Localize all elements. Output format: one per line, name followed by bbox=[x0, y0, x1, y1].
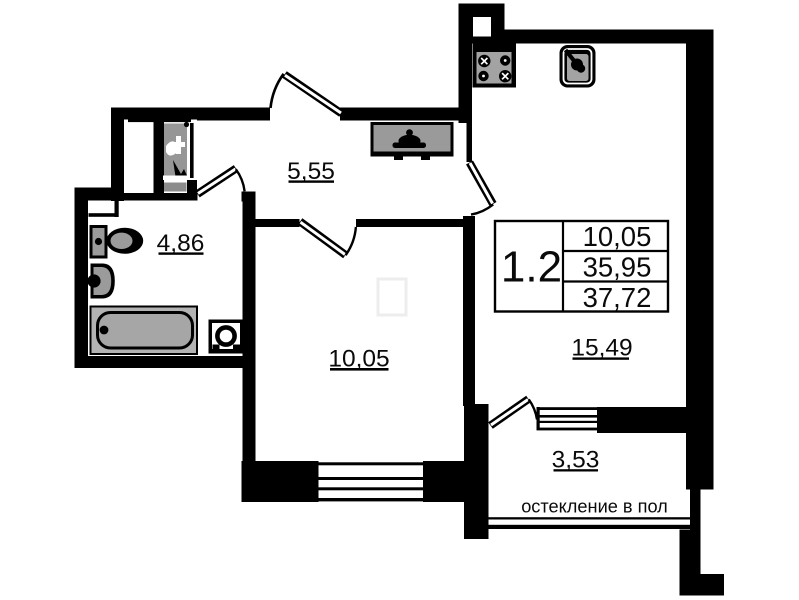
svg-text:1.2: 1.2 bbox=[501, 242, 562, 291]
svg-text:остекление в пол: остекление в пол bbox=[521, 497, 668, 517]
svg-text:35,95: 35,95 bbox=[583, 252, 652, 283]
svg-text:10,05: 10,05 bbox=[583, 221, 652, 252]
svg-text:37,72: 37,72 bbox=[583, 282, 652, 313]
svg-text:15,49: 15,49 bbox=[571, 334, 632, 361]
